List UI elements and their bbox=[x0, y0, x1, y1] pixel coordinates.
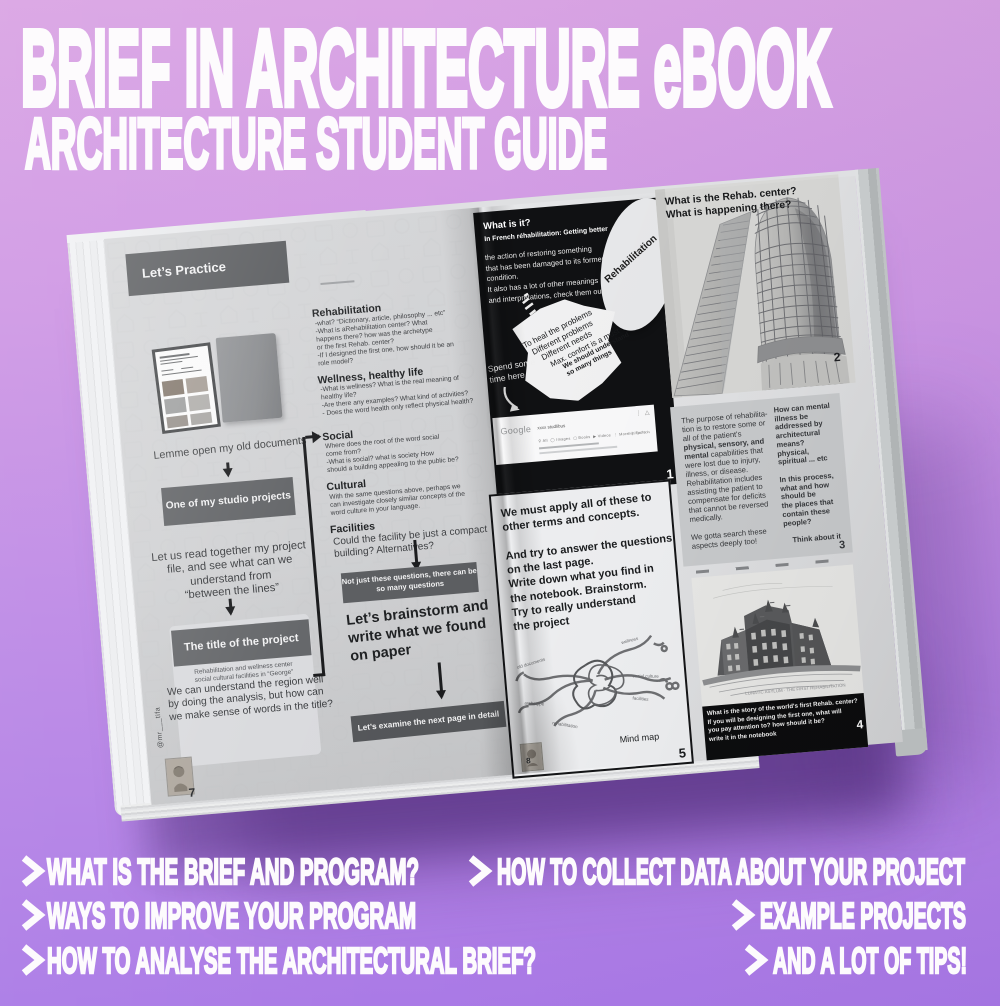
svg-text:HOW TO COLLECT DATA ABOUT YOUR: HOW TO COLLECT DATA ABOUT YOUR PROJECT bbox=[497, 851, 965, 892]
svg-text:EXAMPLE PROJECTS: EXAMPLE PROJECTS bbox=[760, 895, 966, 936]
svg-text:WAYS TO IMPROVE YOUR PROGRAM: WAYS TO IMPROVE YOUR PROGRAM bbox=[47, 895, 416, 936]
svg-text:AND A LOT OF TIPS!: AND A LOT OF TIPS! bbox=[773, 940, 967, 981]
svg-text:HOW TO ANALYSE THE ARCHITECTUR: HOW TO ANALYSE THE ARCHITECTURAL BRIEF? bbox=[47, 940, 536, 981]
svg-text:WHAT IS THE BRIEF AND PROGRAM?: WHAT IS THE BRIEF AND PROGRAM? bbox=[47, 851, 419, 892]
svg-text:ARCHITECTURE STUDENT GUIDE: ARCHITECTURE STUDENT GUIDE bbox=[25, 105, 607, 184]
